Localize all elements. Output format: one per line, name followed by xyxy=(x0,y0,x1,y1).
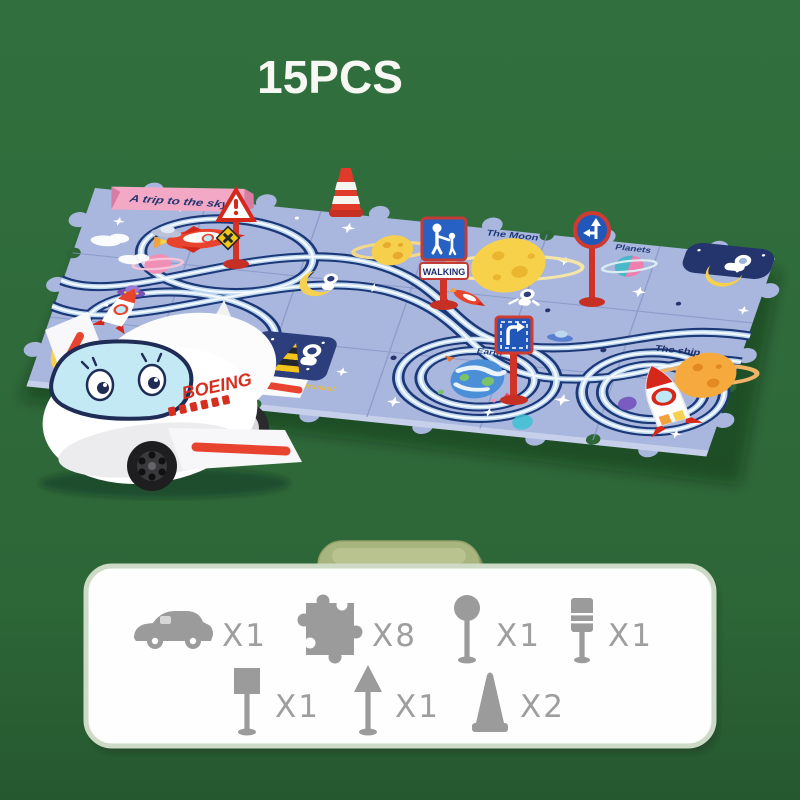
traffic-light-count: X1 xyxy=(608,618,653,654)
pieces-count-title: 15PCS xyxy=(257,51,403,103)
puzzle-piece-icon xyxy=(298,595,363,664)
product-photo: 15PCS xyxy=(0,0,800,800)
front-wheel xyxy=(127,441,177,491)
car-count: X1 xyxy=(222,618,267,654)
cone-count: X2 xyxy=(520,689,565,725)
parts-panel: X1 X8 X1 xyxy=(86,541,718,753)
triangle-sign-count: X1 xyxy=(395,689,440,725)
round-sign-count: X1 xyxy=(496,618,541,654)
square-sign-count: X1 xyxy=(275,689,320,725)
pill-tab-highlight xyxy=(332,548,466,564)
walking-sign-text: WALKING xyxy=(423,267,466,277)
scene: 15PCS xyxy=(0,0,800,800)
puzzle-count: X8 xyxy=(372,618,417,654)
right-wing-stripe xyxy=(196,447,286,451)
